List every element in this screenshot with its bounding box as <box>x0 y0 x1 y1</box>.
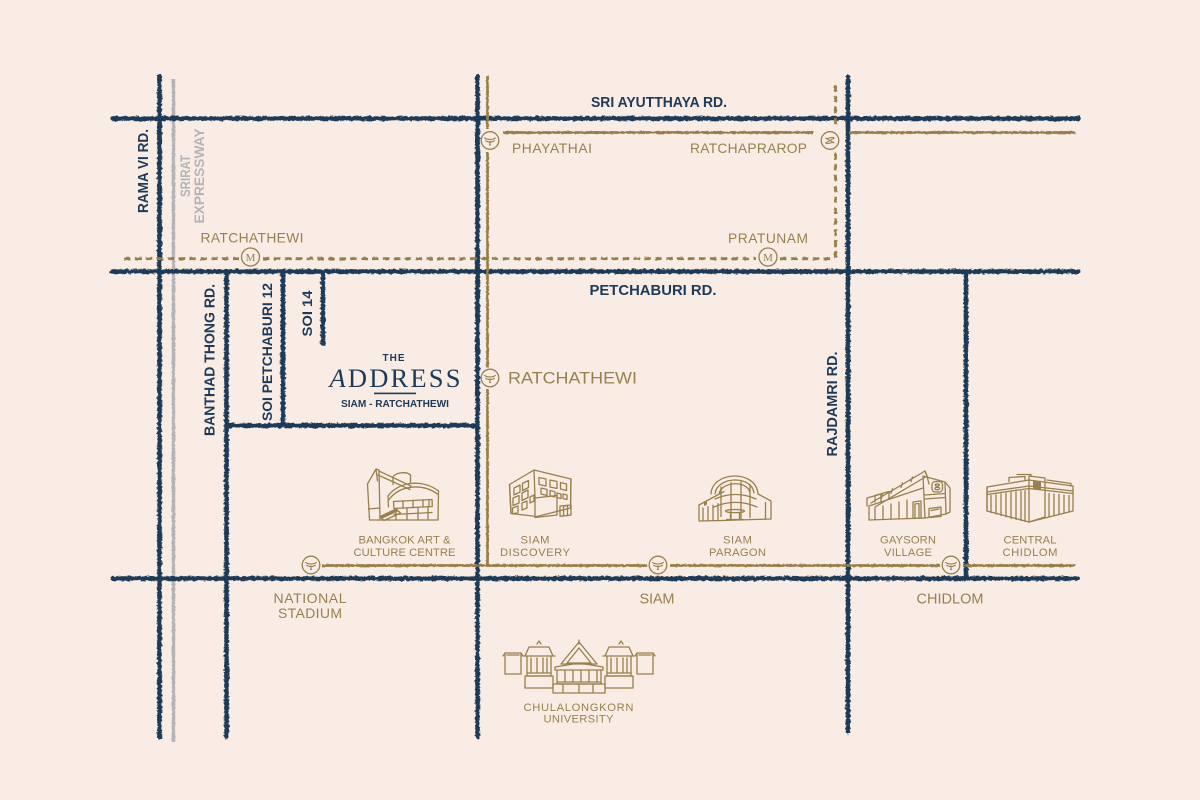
svg-text:UNIVERSITY: UNIVERSITY <box>544 714 615 726</box>
svg-text:STADIUM: STADIUM <box>278 605 342 621</box>
svg-text:SOI PETCHABURI 12: SOI PETCHABURI 12 <box>259 283 275 421</box>
svg-text:PHAYATHAI: PHAYATHAI <box>512 141 592 156</box>
svg-text:SIAM: SIAM <box>640 592 675 608</box>
svg-text:M: M <box>763 252 773 264</box>
svg-text:SIAM: SIAM <box>723 535 752 547</box>
svg-text:DISCOVERY: DISCOVERY <box>500 547 571 559</box>
svg-text:BANTHAD THONG RD.: BANTHAD THONG RD. <box>202 284 219 436</box>
svg-text:CULTURE CENTRE: CULTURE CENTRE <box>354 547 456 559</box>
svg-text:EXPRESSWAY: EXPRESSWAY <box>191 128 207 224</box>
svg-text:PRATUNAM: PRATUNAM <box>728 231 808 246</box>
svg-text:RAJDAMRI RD.: RAJDAMRI RD. <box>824 352 841 457</box>
svg-text:SRI AYUTTHAYA RD.: SRI AYUTTHAYA RD. <box>591 94 727 111</box>
svg-text:PETCHABURI RD.: PETCHABURI RD. <box>590 282 717 299</box>
svg-text:NATIONAL: NATIONAL <box>274 590 347 606</box>
svg-text:VILLAGE: VILLAGE <box>884 547 932 559</box>
svg-text:CHULALONGKORN: CHULALONGKORN <box>524 702 634 714</box>
svg-text:RAMA VI RD.: RAMA VI RD. <box>135 129 152 213</box>
svg-text:RATCHAPRAROP: RATCHAPRAROP <box>690 141 807 156</box>
svg-text:BANGKOK ART &: BANGKOK ART & <box>359 535 452 547</box>
svg-text:SIAM - RATCHATHEWI: SIAM - RATCHATHEWI <box>341 399 449 410</box>
svg-text:M: M <box>246 252 256 264</box>
svg-text:SIAM: SIAM <box>521 535 550 547</box>
svg-text:RATCHATHEWI: RATCHATHEWI <box>201 231 304 246</box>
svg-text:SOI 14: SOI 14 <box>299 290 315 336</box>
svg-text:CHIDLOM: CHIDLOM <box>1003 547 1058 559</box>
svg-text:CENTRAL: CENTRAL <box>1004 535 1057 547</box>
svg-text:ADDRESS: ADDRESS <box>328 363 461 393</box>
svg-text:RATCHATHEWI: RATCHATHEWI <box>508 369 637 388</box>
svg-text:CHIDLOM: CHIDLOM <box>917 592 984 608</box>
svg-text:PARAGON: PARAGON <box>709 547 766 559</box>
svg-text:GAYSORN: GAYSORN <box>880 535 936 547</box>
